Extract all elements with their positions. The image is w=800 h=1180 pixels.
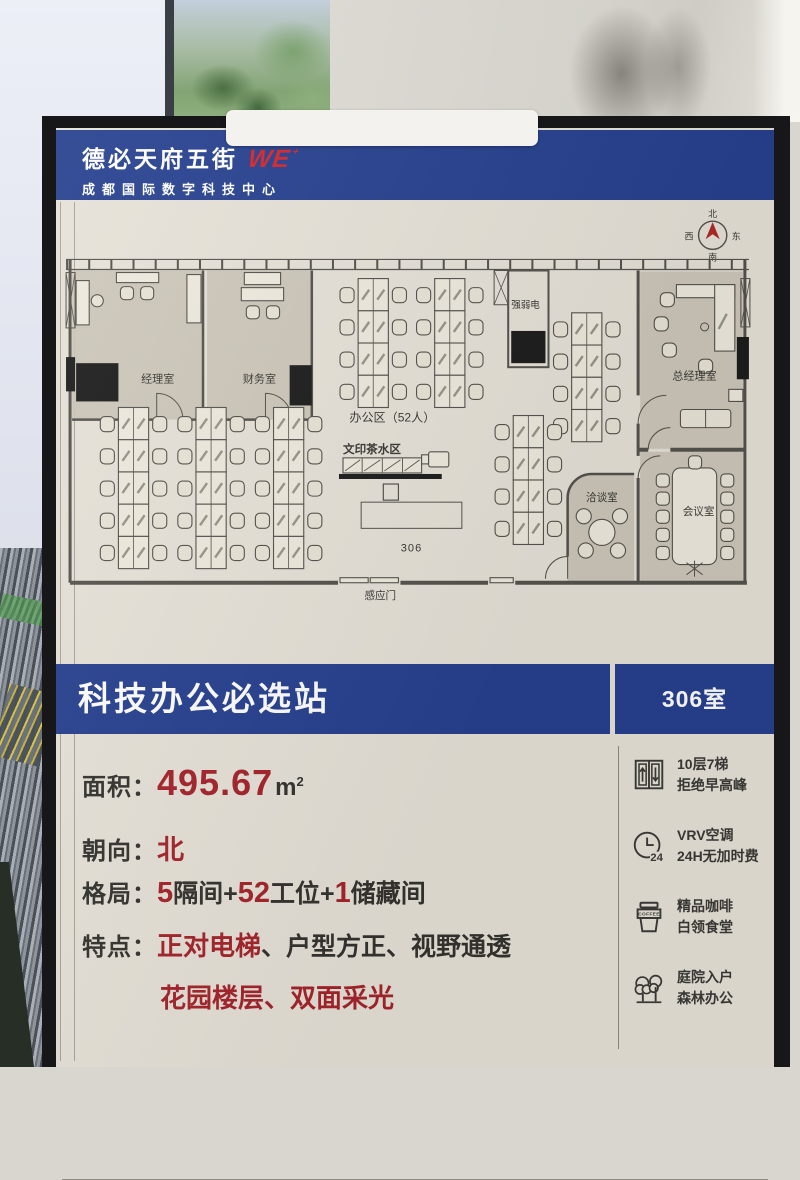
svg-text:总经理室: 总经理室 bbox=[672, 368, 716, 382]
svg-text:强弱电: 强弱电 bbox=[511, 299, 540, 311]
svg-text:COFFEE: COFFEE bbox=[638, 912, 660, 918]
plan-room-number: 306 bbox=[401, 543, 422, 555]
feature-red-1: 正对电梯 bbox=[157, 926, 261, 963]
page-title: 科技办公必选站 bbox=[78, 664, 330, 734]
svg-text:会议室: 会议室 bbox=[683, 505, 715, 518]
layout-text-1: 隔间+ bbox=[173, 874, 238, 910]
spec-layout: 格局： 5 隔间+ 52 工位+ 1 储藏间 bbox=[82, 874, 426, 910]
area-unit: m2 bbox=[275, 774, 304, 802]
svg-text:东: 东 bbox=[732, 230, 741, 241]
print-tea-area: 文印茶水区 bbox=[339, 442, 462, 529]
layout-label: 格局： bbox=[82, 874, 157, 909]
amenity-line2: 24H无加时费 bbox=[677, 846, 759, 867]
office-area-label: 办公区（52人） bbox=[349, 410, 435, 425]
sensor-door-label: 感应门 bbox=[364, 589, 396, 602]
layout-num-3: 1 bbox=[335, 877, 351, 910]
amenity-coffee: COFFEE 精品咖啡 白领食堂 bbox=[630, 896, 774, 938]
amenity-ac: 24 VRV空调 24H无加时费 bbox=[630, 825, 774, 867]
svg-text:经理室: 经理室 bbox=[141, 371, 174, 385]
amenity-elevator: 10层7梯 拒绝早高峰 bbox=[630, 754, 774, 796]
amenity-line1: VRV空调 bbox=[677, 825, 759, 846]
area-label: 面积： bbox=[82, 767, 157, 802]
details-section: 面积： 495.67 m2 朝向： 北 格局： 5 隔间+ 52 工位+ 1 储… bbox=[56, 734, 774, 1067]
amenity-line1: 精品咖啡 bbox=[677, 896, 733, 917]
features-label: 特点： bbox=[82, 927, 157, 962]
clock-24h-icon: 24 bbox=[630, 827, 668, 865]
spec-features: 特点： 正对电梯 、户型方正、视野通透 bbox=[82, 926, 511, 963]
elevator-icon bbox=[630, 756, 668, 794]
room-number-badge: 306室 bbox=[615, 664, 774, 734]
floor-plan-drawing: 北 南 西 东 bbox=[60, 208, 760, 611]
spec-area: 面积： 495.67 m2 bbox=[82, 762, 304, 804]
amenity-line2: 森林办公 bbox=[677, 988, 733, 1009]
orientation-value: 北 bbox=[157, 828, 184, 867]
amenity-line2: 拒绝早高峰 bbox=[677, 775, 747, 796]
amenity-line1: 庭院入户 bbox=[677, 967, 733, 988]
poster-clip-tab bbox=[226, 110, 538, 146]
room-fills bbox=[72, 271, 743, 583]
poster-frame: 德必天府五街 WE⁺ 成都国际数字科技中心 北 南 西 东 bbox=[42, 116, 790, 1067]
amenity-line2: 白领食堂 bbox=[677, 917, 733, 938]
amenity-garden: 庭院入户 森林办公 bbox=[630, 967, 774, 1009]
svg-text:西: 西 bbox=[684, 231, 693, 241]
area-value: 495.67 bbox=[157, 762, 273, 804]
feature-red-2: 花园楼层、双面采光 bbox=[160, 978, 394, 1015]
vertical-divider bbox=[618, 746, 619, 1049]
amenity-line1: 10层7梯 bbox=[677, 754, 747, 775]
layout-num-1: 5 bbox=[157, 877, 173, 910]
title-bar: 科技办公必选站 306室 bbox=[56, 664, 774, 734]
svg-text:财务室: 财务室 bbox=[243, 371, 276, 385]
layout-num-2: 52 bbox=[238, 877, 270, 910]
layout-text-3: 储藏间 bbox=[351, 874, 426, 910]
power-room: 强弱电 bbox=[494, 271, 548, 368]
logo-en: WE⁺ bbox=[246, 145, 300, 174]
spec-features-2: 花园楼层、双面采光 bbox=[160, 978, 394, 1015]
desk-cluster-left bbox=[100, 407, 322, 568]
svg-text:北: 北 bbox=[708, 209, 717, 219]
svg-text:24: 24 bbox=[650, 852, 663, 864]
logo-superscript: ⁺ bbox=[290, 147, 299, 161]
feature-rest-1: 、户型方正、视野通透 bbox=[261, 927, 511, 963]
spec-orientation: 朝向： 北 bbox=[82, 828, 184, 867]
brand-subtitle: 成都国际数字科技中心 bbox=[82, 179, 774, 198]
compass-icon: 北 南 西 东 bbox=[684, 209, 740, 262]
desk-cluster-top bbox=[340, 279, 483, 408]
layout-text-2: 工位+ bbox=[270, 874, 335, 910]
glass-wall bbox=[330, 0, 800, 122]
svg-text:洽谈室: 洽谈室 bbox=[586, 491, 618, 504]
amenities-column: 10层7梯 拒绝早高峰 24 VRV空调 24H无加时费 bbox=[630, 754, 774, 1009]
logo-cn: 德必天府五街 bbox=[82, 140, 238, 174]
coffee-icon: COFFEE bbox=[630, 898, 668, 936]
orientation-label: 朝向： bbox=[82, 831, 157, 866]
svg-text:文印茶水区: 文印茶水区 bbox=[343, 442, 401, 456]
floor-plan: 北 南 西 东 bbox=[60, 208, 770, 660]
trees-icon bbox=[630, 969, 668, 1007]
poster: 德必天府五街 WE⁺ 成都国际数字科技中心 北 南 西 东 bbox=[56, 128, 774, 1067]
